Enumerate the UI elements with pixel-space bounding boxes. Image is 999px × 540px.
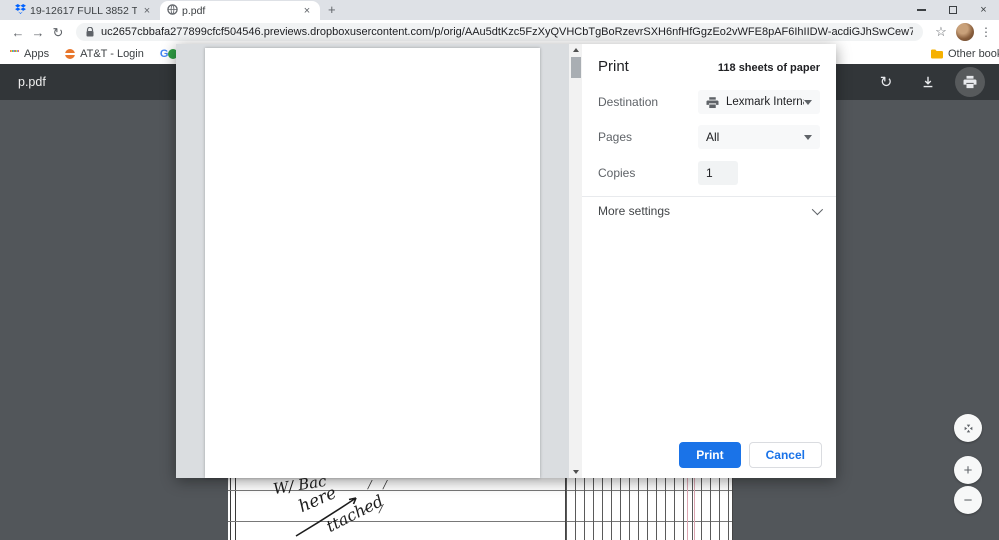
maximize-icon <box>949 6 957 14</box>
fit-to-page-icon <box>963 423 974 434</box>
download-icon[interactable] <box>913 67 943 97</box>
pdf-document-page: W/ Bac here ttached / / / / <box>228 478 733 540</box>
ledger-rule-line <box>230 478 231 540</box>
bookmark-att-login[interactable]: AT&T - Login <box>65 48 144 60</box>
bookmark-label: Apps <box>24 48 49 60</box>
copies-label: Copies <box>598 166 635 180</box>
window-controls: × <box>906 0 999 20</box>
other-bookmarks-folder[interactable]: Other bookmark <box>931 44 999 64</box>
tab-title: 19-12617 FULL 3852 Tupelo Bran <box>30 5 137 17</box>
close-tab-icon[interactable]: × <box>141 5 153 17</box>
avatar[interactable] <box>956 23 974 41</box>
apps-grid-icon <box>10 50 19 59</box>
tab-title: p.pdf <box>182 5 297 17</box>
dropbox-icon <box>15 4 26 17</box>
pages-label: Pages <box>598 130 632 144</box>
reload-icon[interactable]: ↻ <box>48 26 68 39</box>
ledger-rule-line <box>235 478 236 540</box>
chevron-down-icon <box>804 100 812 105</box>
ledger-grid <box>565 478 733 540</box>
maximize-button[interactable] <box>937 0 968 20</box>
zoom-out-button[interactable]: − <box>954 486 982 514</box>
destination-select[interactable]: Lexmark International <box>698 90 820 114</box>
print-settings-pane: Print 118 sheets of paper Destination Le… <box>582 44 836 478</box>
minimize-button[interactable] <box>906 0 937 20</box>
rotate-icon[interactable]: ↻ <box>871 67 901 97</box>
tab-dropbox-file[interactable]: 19-12617 FULL 3852 Tupelo Bran × <box>8 1 160 20</box>
handwriting-arrow <box>292 492 366 538</box>
address-bar[interactable]: uc2657cbbafa277899cfcf504546.previews.dr… <box>76 23 923 41</box>
other-bookmarks-label: Other bookmark <box>948 48 999 60</box>
print-icon[interactable] <box>955 67 985 97</box>
bookmark-apps[interactable]: Apps <box>10 48 49 60</box>
bookmark-label: AT&T - Login <box>80 48 144 60</box>
sheets-count: 118 sheets of paper <box>718 62 820 74</box>
print-preview-pane <box>176 44 582 478</box>
globe-icon <box>167 4 178 18</box>
preview-scrollbar[interactable] <box>569 44 582 478</box>
chevron-down-icon[interactable] <box>812 204 823 215</box>
print-preview-page <box>205 48 540 478</box>
copies-input[interactable] <box>698 161 738 185</box>
fit-to-page-button[interactable] <box>954 414 982 442</box>
forward-icon[interactable]: → <box>28 26 48 39</box>
close-tab-icon[interactable]: × <box>301 5 313 17</box>
bookmark-star-icon[interactable]: ☆ <box>931 24 951 40</box>
folder-icon <box>931 49 943 59</box>
browser-menu-icon[interactable]: ⋮ <box>979 25 993 39</box>
handwriting-ticks: / / <box>368 478 391 491</box>
scrollbar-thumb[interactable] <box>571 57 581 78</box>
pages-select[interactable]: All <box>698 125 820 149</box>
handwriting-ticks: / / <box>364 502 387 515</box>
lock-icon <box>86 27 94 37</box>
print-dialog-title: Print <box>598 58 629 75</box>
scroll-down-icon[interactable] <box>573 470 579 474</box>
destination-value: Lexmark International <box>726 96 804 108</box>
browser-toolbar: ← → ↻ uc2657cbbafa277899cfcf504546.previ… <box>0 20 999 44</box>
pages-value: All <box>706 130 719 144</box>
ledger-pink-rule <box>694 478 695 540</box>
pdf-filename: p.pdf <box>18 75 46 89</box>
cancel-button[interactable]: Cancel <box>749 442 822 468</box>
print-dialog: Print 118 sheets of paper Destination Le… <box>176 44 836 478</box>
tab-strip: 19-12617 FULL 3852 Tupelo Bran × p.pdf ×… <box>0 0 999 20</box>
scroll-up-icon[interactable] <box>573 48 579 52</box>
print-button[interactable]: Print <box>679 442 740 468</box>
new-tab-button[interactable]: + <box>328 2 336 17</box>
minimize-icon <box>917 9 926 10</box>
zoom-in-button[interactable]: + <box>954 456 982 484</box>
printer-icon <box>706 96 719 109</box>
tab-pdf[interactable]: p.pdf × <box>160 1 320 20</box>
more-settings-label: More settings <box>598 204 670 218</box>
close-window-button[interactable]: × <box>968 0 999 20</box>
back-icon[interactable]: ← <box>8 26 28 39</box>
chevron-down-icon <box>804 135 812 140</box>
att-icon <box>65 49 75 59</box>
ledger-pink-rule <box>687 478 688 540</box>
url-text: uc2657cbbafa277899cfcf504546.previews.dr… <box>101 26 913 38</box>
destination-label: Destination <box>598 95 658 109</box>
